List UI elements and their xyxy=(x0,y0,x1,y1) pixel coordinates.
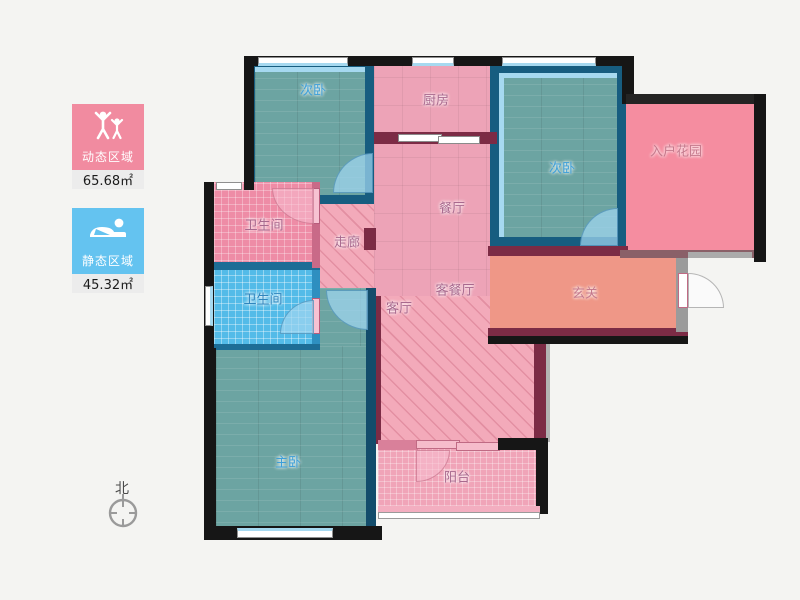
label-bath-lower: 卫生间 xyxy=(243,289,282,308)
sliding-door-balcony xyxy=(456,442,500,451)
window-master xyxy=(237,528,333,538)
label-living: 客厅 xyxy=(386,298,412,317)
label-master-bedroom: 主卧 xyxy=(275,452,301,471)
room-master-bedroom xyxy=(216,346,372,528)
window-bath-lower xyxy=(205,286,213,326)
label-living-dining: 客餐厅 xyxy=(435,280,474,299)
floor-plan: 次卧 厨房 次卧 入户花园 餐厅 走廊 卫生间 卫生间 客餐厅 客厅 玄关 主卧… xyxy=(0,0,800,600)
window-band xyxy=(499,73,617,78)
label-bedroom-right: 次卧 xyxy=(549,158,575,177)
window-bedroom-right xyxy=(502,57,596,66)
wall-shadow xyxy=(688,252,752,258)
room-entry-garden xyxy=(626,104,754,250)
wall-bath-divider xyxy=(214,262,320,270)
label-bedroom-top: 次卧 xyxy=(300,80,326,99)
wall-balcony-stub xyxy=(378,440,418,450)
label-dining: 餐厅 xyxy=(439,198,465,217)
sliding-door-kitchen xyxy=(438,136,480,144)
wall-bedroom2-foyer xyxy=(488,246,628,256)
wall-garden-top xyxy=(626,94,766,104)
label-bath-upper: 卫生间 xyxy=(244,215,283,234)
wall-bath-master xyxy=(214,344,320,350)
wall-balcony-top-black xyxy=(498,438,538,450)
balcony-rail-window xyxy=(378,512,540,519)
wall-garden-right xyxy=(754,94,766,262)
window-kitchen xyxy=(412,57,454,66)
sliding-door-balcony xyxy=(416,440,460,449)
room-dining xyxy=(374,142,490,298)
wall-corridor-stub xyxy=(364,228,376,250)
window-band xyxy=(499,73,504,237)
window-bath-upper xyxy=(216,182,242,190)
wall-foyer-bottom-outer xyxy=(488,336,688,344)
wall-outer-left-lower xyxy=(204,348,216,540)
wall-living-left xyxy=(376,296,381,444)
wall-shadow xyxy=(546,334,550,442)
wall-outer-left-upper xyxy=(244,56,254,190)
label-balcony: 阳台 xyxy=(444,467,470,486)
entrance-door-panel xyxy=(678,273,688,308)
wall-foyer-bottom xyxy=(488,328,688,336)
window-bedroom-top xyxy=(258,57,348,66)
label-entry-garden: 入户花园 xyxy=(650,141,702,160)
door-arc-entrance xyxy=(688,273,724,308)
label-kitchen: 厨房 xyxy=(423,90,449,109)
window-band xyxy=(255,67,365,72)
wall-living-right xyxy=(534,330,546,442)
wall-balcony-right xyxy=(536,438,548,514)
room-corridor xyxy=(320,204,374,298)
label-corridor: 走廊 xyxy=(334,232,360,251)
sliding-door-kitchen xyxy=(398,134,442,142)
label-foyer: 玄关 xyxy=(572,283,598,302)
